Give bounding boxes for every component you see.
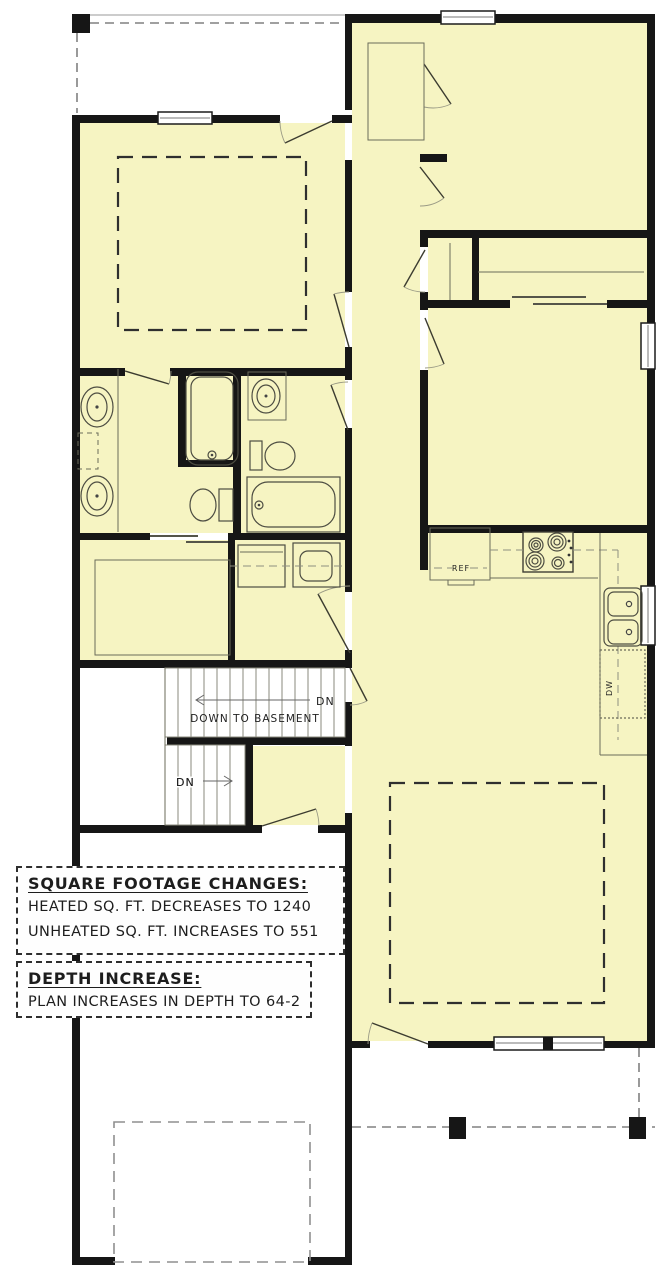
dn-lower-label-text: DN bbox=[176, 776, 195, 789]
depth-note-line: PLAN INCREASES IN DEPTH TO 64-2 bbox=[28, 990, 300, 1015]
depth-note-title: DEPTH INCREASE: bbox=[28, 969, 201, 988]
cooktop-icon bbox=[523, 532, 573, 572]
porch-post bbox=[629, 1117, 646, 1139]
front-porch bbox=[72, 14, 345, 113]
dn-upper-label: DN bbox=[316, 695, 335, 708]
window bbox=[441, 11, 495, 24]
garage-slab-dashed bbox=[114, 1122, 310, 1262]
floor-plan: REF DW bbox=[0, 0, 667, 1280]
rear-porch bbox=[352, 1048, 655, 1139]
dw-label: DW bbox=[605, 680, 614, 696]
depth-note-box: DEPTH INCREASE: PLAN INCREASES IN DEPTH … bbox=[16, 961, 312, 1018]
sqft-note-line: HEATED SQ. FT. DECREASES TO 1240 bbox=[28, 895, 333, 920]
ref-label: REF bbox=[452, 564, 470, 573]
floor-plan-drawing: REF DW bbox=[0, 0, 667, 1280]
window bbox=[641, 586, 655, 645]
sqft-note-line: UNHEATED SQ. FT. INCREASES TO 551 bbox=[28, 920, 333, 945]
down-to-basement-label: DOWN TO BASEMENT bbox=[190, 713, 320, 725]
window bbox=[641, 323, 655, 369]
porch-post bbox=[449, 1117, 466, 1139]
window bbox=[158, 112, 212, 124]
porch-post bbox=[72, 14, 90, 33]
sqft-note-title: SQUARE FOOTAGE CHANGES: bbox=[28, 874, 308, 893]
window bbox=[494, 1037, 604, 1050]
sqft-note-box: SQUARE FOOTAGE CHANGES: HEATED SQ. FT. D… bbox=[16, 866, 345, 955]
